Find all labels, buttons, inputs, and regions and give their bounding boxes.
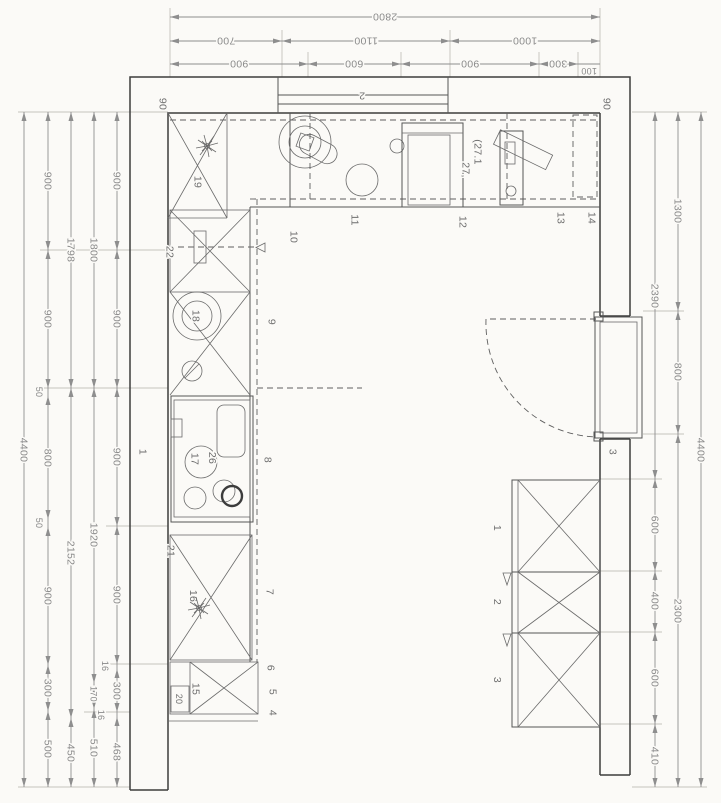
extension-lines: [18, 8, 707, 787]
dim-right: 400: [649, 592, 661, 610]
dim-top: 900: [230, 58, 248, 70]
dimensions-top: 2800 700 1100 1000 900 600 900 300 100: [170, 11, 600, 77]
sink-label: 17: [189, 453, 201, 465]
dim-left: 900: [111, 310, 123, 328]
basin-small: [184, 487, 206, 509]
window: 2: [278, 77, 448, 113]
dim-left: 50: [34, 518, 44, 529]
dim-left: 900: [111, 586, 123, 604]
dimensions-right: 2390 600 400 600 410 1300 800 2300 4400: [649, 112, 707, 787]
pos-label-5: 5: [267, 689, 279, 695]
left-cabinet-run: 22 18 17 26 21 16: [164, 199, 363, 721]
joint-marker-icon: [503, 634, 511, 646]
dim-top: 300: [549, 58, 567, 70]
walls: 1: [130, 77, 630, 790]
dim-top: 1100: [354, 35, 378, 47]
island-section-label: 1: [491, 525, 503, 531]
dim-left: 300: [42, 679, 54, 697]
cabinet-label: 22: [164, 246, 176, 258]
dim-right: 2390: [649, 284, 661, 309]
pos-label-7: 7: [264, 589, 276, 595]
window-label: 2: [359, 90, 365, 102]
kitchen-floor-plan-drawing: 2800 700 1100 1000 900 600 900 300 100 4…: [0, 0, 721, 803]
island-section-label: 3: [491, 677, 503, 683]
dim-left: 50: [34, 387, 44, 398]
dim-left: 1800: [88, 238, 100, 263]
dim-right: 600: [649, 669, 661, 687]
dim-right-overall: 4400: [695, 438, 707, 463]
pos-label-14: 14: [586, 212, 598, 224]
dim-left: 900: [42, 172, 54, 190]
unit-label: 18: [190, 310, 202, 322]
dim-top: 1000: [513, 35, 538, 47]
faucet-icon: [171, 419, 182, 437]
dim-left: 2152: [65, 541, 77, 566]
sink-label: 26: [206, 452, 218, 464]
dim-left: 510: [88, 739, 100, 757]
dim-right: 600: [649, 516, 661, 534]
dim-top-total: 2800: [373, 11, 398, 23]
offset-label-left: 90: [157, 98, 169, 110]
dim-left: 450: [65, 744, 77, 762]
dim-left: 468: [111, 743, 123, 761]
dimensions-left: 4400 900 900 50 800 50 900 300 500 1798 …: [18, 112, 123, 787]
wall-segment-label: 1: [137, 449, 149, 455]
pos-label-21: 21: [165, 545, 177, 557]
dim-left: 900: [42, 310, 54, 328]
pos-label-4: 4: [267, 710, 279, 716]
pos-label-11: 11: [349, 214, 361, 226]
dim-right: 410: [649, 747, 661, 765]
dim-left: 900: [111, 172, 123, 190]
dim-left: 16: [96, 710, 106, 721]
door-swing-arc: [486, 319, 596, 437]
dim-left: 900: [111, 448, 123, 466]
plant-icon: [196, 135, 218, 157]
island-section-label: 2: [491, 599, 503, 605]
pot-symbol: [346, 164, 378, 196]
dim-left: 170: [89, 686, 99, 702]
pos-label-12: 12: [457, 216, 469, 228]
cabinet-16: 16: [170, 535, 252, 660]
island-unit: 1 2 3: [491, 480, 600, 727]
top-cabinet-run: 19 27, (27.1 10 11: [157, 98, 613, 243]
cabinet-15: 15 20: [168, 662, 258, 721]
pos-label-6: 6: [265, 665, 277, 671]
dim-top: 700: [217, 35, 235, 47]
cabinet-22: 22: [164, 210, 251, 292]
pot-ring: [222, 486, 242, 506]
sink-block: 17 26: [171, 396, 253, 522]
box-label: 20: [174, 694, 184, 705]
door: 3: [486, 312, 642, 455]
scanned-floor-plan-sheet: 2800 700 1100 1000 900 600 900 300 100 4…: [0, 0, 721, 803]
dim-left: 900: [42, 587, 54, 605]
angle-note: (27.1: [472, 139, 484, 164]
dim-left: 1798: [65, 238, 77, 263]
pos-label-9: 9: [266, 319, 278, 325]
pos-label-8: 8: [262, 457, 274, 463]
dim-top-inset: 100: [581, 66, 597, 76]
pos-label-13: 13: [555, 212, 567, 224]
pos-label-10: 10: [288, 231, 300, 243]
door-label: 3: [607, 449, 619, 455]
drainer: [217, 405, 245, 457]
corner-cabinet-19: 19: [168, 113, 227, 218]
appliance-oven: [402, 123, 463, 207]
dim-right: 2300: [672, 599, 684, 624]
cabinet-label: 19: [192, 176, 204, 188]
dim-top: 900: [461, 58, 479, 70]
appliance-with-open-door: [493, 130, 552, 205]
dashed-niche: [573, 115, 597, 197]
unit-18: 18: [170, 292, 250, 395]
joint-marker-icon: [503, 573, 511, 585]
dim-top: 600: [345, 58, 363, 70]
dim-right: 1300: [672, 199, 684, 224]
dim-left-overall: 4400: [18, 438, 30, 463]
angle-note: 27,: [460, 162, 472, 178]
dim-left: 16: [100, 661, 110, 672]
cabinet-label: 15: [190, 683, 202, 695]
dim-left: 300: [111, 682, 123, 700]
dim-right: 800: [672, 363, 684, 381]
dim-left: 800: [42, 449, 54, 467]
offset-label-right: 90: [601, 98, 613, 110]
dim-left: 1920: [88, 523, 100, 548]
dim-left: 500: [42, 740, 54, 758]
